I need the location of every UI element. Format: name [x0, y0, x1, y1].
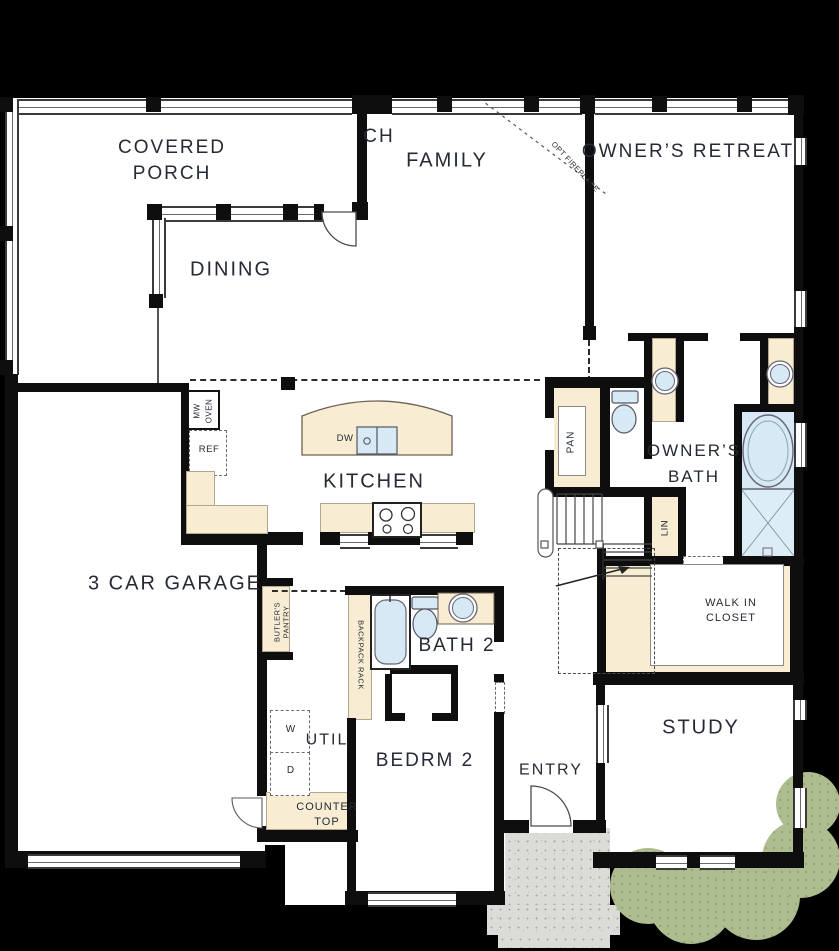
wall-bath2-right	[494, 586, 504, 642]
kitchen-window	[340, 534, 370, 549]
room-label-porch-fragment: CH	[363, 127, 394, 147]
post	[437, 96, 452, 112]
appliance-label-washer: W	[286, 725, 296, 736]
bedrm2-window	[368, 892, 456, 907]
dashed-line	[272, 590, 346, 592]
room-label-owners-bath: OWNER’S	[647, 442, 741, 460]
entry-stoop	[505, 828, 610, 910]
wall-util-bottom	[257, 830, 358, 842]
retreat-window	[595, 99, 788, 115]
label-backpack-rack: BACKPACK RACK	[357, 620, 366, 690]
porch-edge-line	[157, 308, 159, 383]
wall-closet-right	[790, 556, 803, 675]
wall-pantry-bottom	[545, 487, 686, 497]
retreat-side-window	[794, 138, 807, 165]
wall-bath-right	[794, 467, 803, 566]
entry-stoop-step	[487, 905, 620, 935]
room-label-linen: LIN	[660, 520, 671, 536]
room-label-dining: DINING	[190, 260, 272, 281]
kitchen-counter	[186, 505, 268, 534]
post	[494, 674, 504, 682]
retreat-side-window	[794, 291, 807, 327]
wall-house-left	[5, 374, 18, 868]
porch-top-edge	[5, 99, 352, 115]
room-label-owners-bath-2: BATH	[668, 468, 720, 486]
appliance-label-mw: MW	[193, 403, 202, 418]
wall-closet	[432, 713, 458, 721]
wall-study-bottom	[593, 852, 804, 868]
wall-retreat-right	[794, 99, 803, 140]
post	[283, 204, 298, 220]
floor-plan: COVERED PORCH CH FAMILY OPT FIREPLACE OW…	[0, 0, 839, 951]
post	[652, 96, 667, 112]
room-label-owners-retreat: OWNER’S RETREAT	[582, 142, 794, 162]
study-french-door	[596, 705, 609, 763]
post	[456, 532, 473, 545]
vanity-counter	[768, 338, 794, 414]
shower-floor	[742, 490, 794, 556]
dashed-line	[588, 340, 590, 382]
label-counter-top-2: TOP	[314, 817, 339, 829]
wall-under-cooktop	[368, 532, 420, 545]
wall-vanity	[760, 338, 768, 414]
wall-study-left	[596, 685, 605, 705]
bedrm2-cased-opening	[495, 682, 505, 714]
room-label-util: UTIL	[306, 733, 349, 750]
label-butlers-pantry: BUTLER'S	[273, 602, 282, 642]
wall-pantry-wc	[600, 377, 610, 494]
room-label-entry: ENTRY	[519, 763, 583, 780]
wall-family-retreat	[585, 99, 594, 332]
room-label-bath2: BATH 2	[418, 636, 495, 656]
appliance-label-dryer: D	[287, 766, 295, 777]
dining-left-window	[152, 218, 166, 298]
room-label-walkin-2: CLOSET	[706, 613, 756, 625]
appliance-label-oven: OVEN	[205, 399, 214, 424]
room-label-bedrm2: BEDRM 2	[376, 751, 474, 771]
post	[737, 96, 752, 112]
post	[320, 532, 340, 545]
post	[0, 226, 13, 241]
wall-closet	[385, 713, 405, 721]
front-door-opening	[529, 820, 573, 833]
study-window	[793, 700, 807, 720]
wall-stub	[257, 652, 293, 660]
wall-bath2-bottom	[390, 665, 458, 674]
wall-bath-right	[794, 343, 803, 423]
wall-pantry-left	[545, 388, 554, 418]
vanity-counter	[652, 338, 676, 422]
wall-tub-left	[734, 410, 742, 560]
wall-bath2-top	[345, 586, 503, 595]
kitchen-window	[420, 534, 458, 549]
wall-vanity	[676, 338, 684, 422]
post	[146, 97, 161, 112]
dashed-ceiling-line	[190, 379, 540, 381]
tub-window	[794, 423, 807, 467]
wall-lin	[678, 487, 686, 566]
post	[149, 294, 163, 308]
post	[0, 97, 13, 112]
shrub	[776, 772, 839, 836]
tub-deck	[742, 412, 794, 490]
post	[524, 96, 539, 112]
wall-garage-top	[5, 383, 189, 392]
post	[216, 204, 231, 220]
room-label-covered-porch-2: PORCH	[133, 164, 212, 184]
room-label-covered-porch: COVERED	[118, 138, 226, 158]
wall-tub-top	[734, 404, 796, 412]
room-label-kitchen: KITCHEN	[323, 472, 425, 493]
room-label-study: STUDY	[662, 718, 740, 739]
wall-pantry-top	[545, 377, 653, 388]
garage-door	[28, 854, 240, 869]
post	[583, 326, 596, 340]
post	[0, 360, 13, 375]
post	[314, 204, 324, 220]
study-window	[700, 855, 735, 870]
family-window	[392, 99, 582, 115]
dining-porch-window	[152, 206, 324, 222]
wall-retreat-right	[794, 165, 803, 293]
entry-stoop-step-2	[498, 935, 610, 948]
post	[147, 204, 162, 220]
kitchen-counter-sinkrun	[320, 503, 475, 533]
stairs-dashed-region	[558, 548, 655, 674]
appliance-label-dw: DW	[337, 434, 354, 444]
room-label-walkin: WALK IN	[705, 598, 757, 610]
post	[281, 377, 295, 390]
wall-stub	[257, 578, 293, 586]
appliance-label-ref: REF	[199, 445, 220, 455]
room-label-family: FAMILY	[406, 151, 488, 172]
room-label-pantry: PAN	[566, 431, 577, 454]
label-counter-top: COUNTER	[296, 802, 357, 814]
label-butlers-pantry-2: PANTRY	[282, 606, 291, 639]
study-window	[656, 855, 687, 870]
wall-bedrm2-right	[494, 712, 504, 898]
study-window	[793, 788, 807, 828]
room-label-garage: 3 CAR GARAGE	[88, 574, 262, 595]
wall-study-left	[596, 763, 605, 823]
